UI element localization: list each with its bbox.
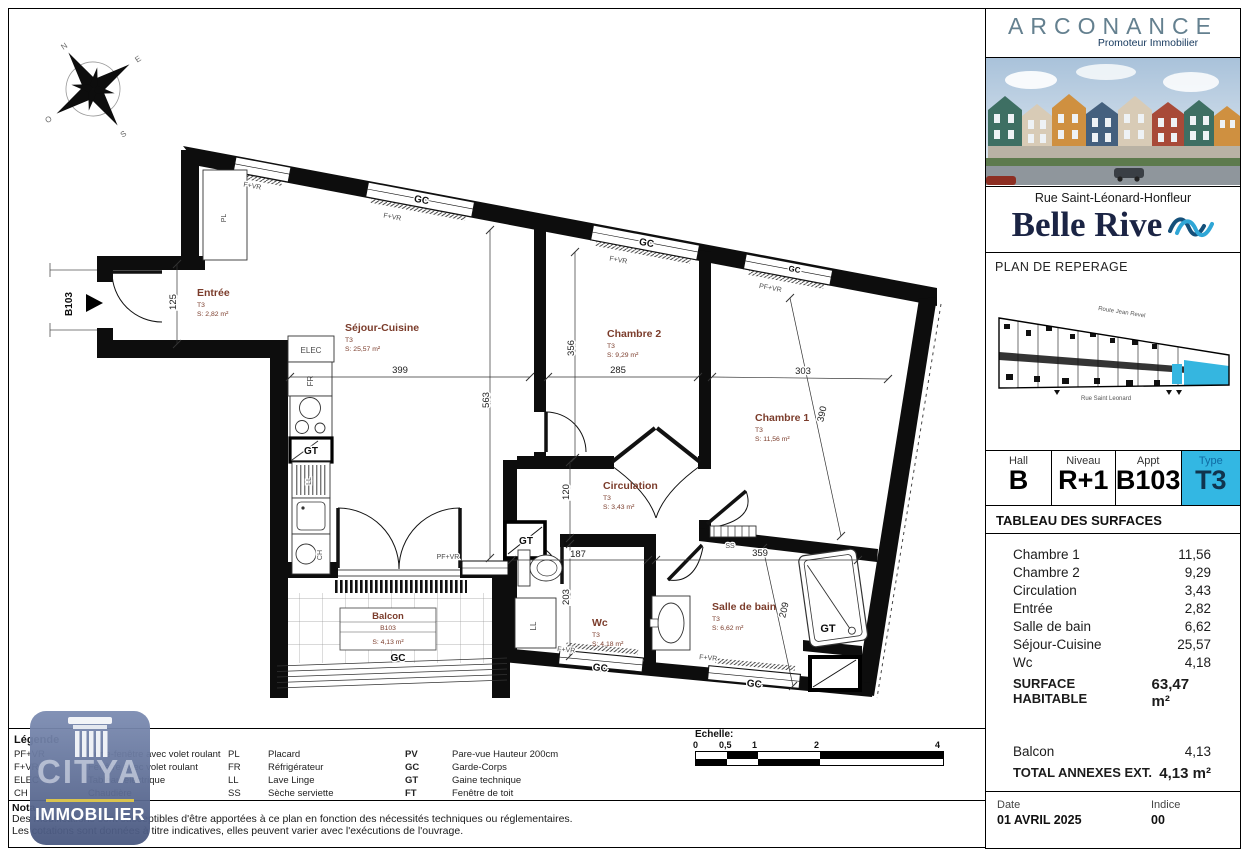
surface-value: 3,43 xyxy=(1185,583,1211,601)
pfvr-tag-1: PF+VR xyxy=(758,283,782,294)
building-photo-box xyxy=(985,57,1241,187)
room-entree: Entrée xyxy=(197,287,230,299)
legend-abbr: CH xyxy=(14,788,28,799)
surface-total-value: 63,47 m² xyxy=(1152,676,1211,710)
scale-title: Echelle: xyxy=(695,729,945,740)
wave-logo-icon xyxy=(1168,211,1214,239)
surface-value: 9,29 xyxy=(1185,565,1211,583)
surface-row: Séjour-Cuisine25,57 xyxy=(1013,637,1211,655)
legend-def: Placard xyxy=(268,749,300,760)
compass-o: O xyxy=(43,114,53,125)
scale-tick: 2 xyxy=(814,740,819,750)
legend-abbr: PL xyxy=(228,749,240,760)
dim-187: 187 xyxy=(570,549,586,560)
pfvr-tag-2: PF+VR xyxy=(437,554,460,561)
gt-br-label: GT xyxy=(820,623,836,635)
compass-e: E xyxy=(133,54,142,64)
gc-tag-5: GC xyxy=(746,678,762,690)
surface-value: 11,56 xyxy=(1178,547,1211,565)
legend-abbr: GC xyxy=(405,762,419,773)
surface-label: Salle de bain xyxy=(1013,619,1091,637)
watermark-rule xyxy=(46,799,134,802)
balcony-gc-label: GC xyxy=(391,653,406,664)
room-sdb-type: T3 xyxy=(712,616,720,623)
brand-header: ARCONANCE Promoteur Immobilier xyxy=(985,8,1241,58)
surface-label: Circulation xyxy=(1013,583,1077,601)
street-bottom-label: Rue Saint Leonard xyxy=(1081,396,1131,402)
legend-def: Sèche serviette xyxy=(268,788,333,799)
surface-value: 2,82 xyxy=(1185,601,1211,619)
closet-pl: PL xyxy=(203,170,247,260)
legend-def: Fenêtre de toit xyxy=(452,788,513,799)
reperage-title: PLAN DE REPERAGE xyxy=(995,260,1240,274)
scale-bar: Echelle: 0 0,5 1 2 4 xyxy=(695,729,945,766)
room-circulation-type: T3 xyxy=(603,495,611,502)
legend-def: Réfrigérateur xyxy=(268,762,323,773)
dim-390: 390 xyxy=(815,405,829,423)
surfaces-table: Chambre 111,56 Chambre 29,29 Circulation… xyxy=(985,533,1241,792)
room-chambre1-type: T3 xyxy=(755,427,763,434)
balcony-area: S: 4,13 m² xyxy=(372,639,404,646)
date-value: 01 AVRIL 2025 xyxy=(997,813,1082,827)
room-chambre2-area: S: 9,29 m² xyxy=(607,352,639,359)
unit-cell-appt: Appt B103 xyxy=(1116,451,1182,505)
compass-s: S xyxy=(119,129,128,139)
room-sejour-type: T3 xyxy=(345,337,353,344)
dim-125: 125 xyxy=(168,294,179,310)
dim-203: 203 xyxy=(561,589,572,605)
scale-tick: 0 xyxy=(693,740,698,750)
appt-value: B103 xyxy=(1116,467,1181,493)
annex-label: Balcon xyxy=(1013,744,1054,762)
surfaces-title: TABLEAU DES SURFACES xyxy=(985,505,1241,534)
unit-cell-hall: Hall B xyxy=(986,451,1052,505)
surface-value: 25,57 xyxy=(1177,637,1211,655)
surface-label: Entrée xyxy=(1013,601,1053,619)
legend-def: Pare-vue Hauteur 200cm xyxy=(452,749,558,760)
project-name: Belle Rive xyxy=(1012,205,1163,245)
room-sejour: Séjour-Cuisine xyxy=(345,322,419,334)
legend-abbr: PV xyxy=(405,749,418,760)
entrance-marker: B103 xyxy=(50,263,103,337)
scale-tick: 1 xyxy=(752,740,757,750)
building-rendering xyxy=(986,58,1240,185)
date-label: Date xyxy=(997,799,1082,811)
annex-row: Balcon4,13 xyxy=(1013,744,1211,762)
annex-total-label: TOTAL ANNEXES EXT. xyxy=(1013,765,1152,782)
watermark-subtitle: IMMOBILIER xyxy=(30,804,150,825)
dim-120: 120 xyxy=(561,484,572,500)
project-address: Rue Saint-Léonard-Honfleur xyxy=(986,191,1240,205)
surface-row: Chambre 29,29 xyxy=(1013,565,1211,583)
legend-abbr: SS xyxy=(228,788,241,799)
room-wc-area: S: 4,18 m² xyxy=(592,641,624,648)
room-sejour-area: S: 25,57 m² xyxy=(345,346,381,353)
entrance-arrow-icon xyxy=(86,294,103,312)
dim-303: 303 xyxy=(795,366,811,377)
window-sejour xyxy=(462,561,508,575)
dim-356: 356 xyxy=(566,340,577,356)
pl-label: PL xyxy=(221,214,228,223)
legend-def: Lave Linge xyxy=(268,775,314,786)
legend-abbr: GT xyxy=(405,775,418,786)
surface-row: Salle de bain6,62 xyxy=(1013,619,1211,637)
scale-bar-graphic xyxy=(695,751,944,766)
ll-wc-label: LL xyxy=(529,621,538,630)
room-sdb: Salle de bain xyxy=(712,601,776,613)
room-circulation: Circulation xyxy=(603,480,658,492)
elec-label: ELEC xyxy=(301,346,322,355)
project-title-box: Rue Saint-Léonard-Honfleur Belle Rive xyxy=(985,186,1241,253)
surface-row: Wc4,18 xyxy=(1013,655,1211,673)
surface-value: 4,18 xyxy=(1185,655,1211,673)
annex-total-row: TOTAL ANNEXES EXT. 4,13 m² xyxy=(1013,765,1211,782)
reperage-box: PLAN DE REPERAGE xyxy=(985,252,1241,451)
legend-def: Gaine technique xyxy=(452,775,521,786)
room-wc: Wc xyxy=(592,617,608,629)
room-sdb-area: S: 6,62 m² xyxy=(712,625,744,632)
room-chambre2: Chambre 2 xyxy=(607,328,661,340)
legend-def: Garde-Corps xyxy=(452,762,507,773)
annex-total-value: 4,13 m² xyxy=(1159,765,1211,782)
balcony-threshold-hatch xyxy=(333,580,467,593)
scale-tick: 0,5 xyxy=(719,740,732,750)
surface-total-row: SURFACE HABITABLE 63,47 m² xyxy=(1013,676,1211,710)
surface-row: Circulation3,43 xyxy=(1013,583,1211,601)
annex-value: 4,13 xyxy=(1185,744,1211,762)
type-value: T3 xyxy=(1182,467,1240,493)
surface-label: Chambre 2 xyxy=(1013,565,1080,583)
surface-total-label: SURFACE HABITABLE xyxy=(1013,676,1152,710)
indice-label: Indice xyxy=(1151,799,1180,811)
hall-value: B xyxy=(986,467,1051,493)
surface-label: Séjour-Cuisine xyxy=(1013,637,1102,655)
dim-359: 359 xyxy=(752,548,768,559)
balcony: Balcon B103 S: 4,13 m² GC xyxy=(277,580,507,688)
legend-abbr: FR xyxy=(228,762,241,773)
room-circulation-area: S: 3,43 m² xyxy=(603,504,635,511)
ch-label: CH xyxy=(317,550,324,560)
room-chambre1-area: S: 11,56 m² xyxy=(755,436,790,443)
date-box: Date 01 AVRIL 2025 Indice 00 xyxy=(985,791,1241,849)
gt-wc-label: GT xyxy=(519,536,533,547)
surface-label: Chambre 1 xyxy=(1013,547,1080,565)
compass-rose: N E S O xyxy=(14,11,173,170)
dim-563: 563 xyxy=(481,392,492,408)
gc-tag-4: GC xyxy=(592,662,608,674)
fvr-tag-5: F+VR xyxy=(699,654,718,663)
surface-row: Chambre 111,56 xyxy=(1013,547,1211,565)
site-plan-thumbnail: Route Jean Revel Rue Saint Leonard xyxy=(986,290,1238,440)
balcony-code: B103 xyxy=(380,625,396,632)
room-entree-area: S: 2,82 m² xyxy=(197,311,229,318)
watermark-name: CITYA xyxy=(30,753,150,791)
surface-label: Wc xyxy=(1013,655,1033,673)
indice-value: 00 xyxy=(1151,813,1180,827)
ll-kitchen-label: LL xyxy=(306,477,313,485)
dim-285: 285 xyxy=(610,365,626,376)
scale-tick: 4 xyxy=(935,740,940,750)
niveau-value: R+1 xyxy=(1052,467,1115,493)
dim-399: 399 xyxy=(392,365,408,376)
dim-209: 209 xyxy=(777,601,791,619)
room-chambre2-type: T3 xyxy=(607,343,615,350)
wc-fixtures xyxy=(515,550,562,648)
fvr-tag-3: F+VR xyxy=(609,255,628,265)
unit-cell-type: Type T3 xyxy=(1182,451,1240,505)
surface-row: Entrée2,82 xyxy=(1013,601,1211,619)
compass-n: N xyxy=(59,41,69,52)
room-chambre1: Chambre 1 xyxy=(755,412,809,424)
floor-plan-sheet: N E S O xyxy=(0,0,1249,860)
unit-cell-niveau: Niveau R+1 xyxy=(1052,451,1116,505)
balcony-label: Balcon xyxy=(372,611,404,622)
gt-kitchen-label: GT xyxy=(304,446,318,457)
legend-abbr: LL xyxy=(228,775,239,786)
street-top-label: Route Jean Revel xyxy=(1098,306,1146,319)
room-wc-type: T3 xyxy=(592,632,600,639)
entrance-door-label: B103 xyxy=(64,292,75,316)
ss-label: SS xyxy=(725,543,735,550)
room-entree-type: T3 xyxy=(197,302,205,309)
brand-name: ARCONANCE xyxy=(986,13,1240,40)
surface-value: 6,62 xyxy=(1185,619,1211,637)
legend-abbr: FT xyxy=(405,788,417,799)
unit-info-table: Hall B Niveau R+1 Appt B103 Type T3 xyxy=(985,450,1241,506)
citya-watermark: CITYA IMMOBILIER xyxy=(30,711,150,845)
fvr-tag-2: F+VR xyxy=(383,212,402,222)
